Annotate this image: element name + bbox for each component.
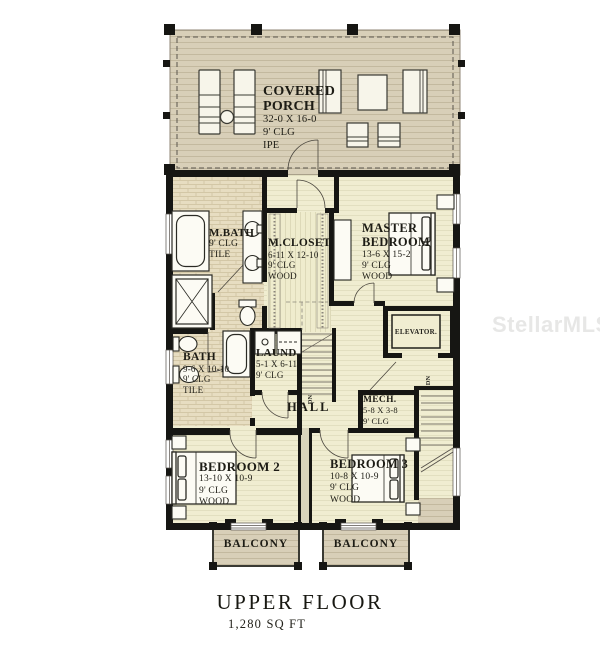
room-ceiling: 9' CLG xyxy=(363,416,415,426)
stellar-mls-watermark: StellarMLS xyxy=(492,312,600,338)
room-ceiling: 9' CLG xyxy=(256,370,300,381)
room-label-mbath: M.BATH 9' CLG TILE xyxy=(209,227,261,262)
master-bathtub xyxy=(172,211,209,271)
room-label-master-bedroom: MASTER BEDROOM 13-6 X 15-2 9' CLG WOOD xyxy=(362,222,454,284)
room-floor: TILE xyxy=(183,385,245,396)
room-label-balcony-left: BALCONY xyxy=(213,538,299,550)
plan-area: 1,280 SQ FT xyxy=(228,617,306,632)
stairs-down-marker: DN xyxy=(425,376,432,385)
room-label-mech: MECH. 5-8 X 3-8 9' CLG xyxy=(363,395,415,426)
room-label-laundry: LAUND 5-1 X 6-11 9' CLG xyxy=(256,347,300,381)
wardrobe xyxy=(334,220,351,280)
room-label-bedroom3: BEDROOM 3 10-8 X 10-9 9' CLG WOOD xyxy=(330,458,410,506)
room-floor: WOOD xyxy=(330,495,410,506)
room-label-covered-porch: COVERED PORCH 32-0 X 16-0 9' CLG IPE xyxy=(263,85,351,152)
side-table xyxy=(221,111,234,124)
room-dims: 6-11 X 12-10 xyxy=(268,250,330,261)
room-ceiling: 9' CLG xyxy=(263,127,351,140)
room-name: M.CLOSET xyxy=(268,237,330,250)
lounge-chair xyxy=(234,70,255,134)
room-ceiling: 9' CLG xyxy=(330,483,410,494)
room-dims: 13-10 X 10-9 xyxy=(199,474,289,485)
room-ceiling: 9' CLG xyxy=(209,239,261,250)
room-name: MECH. xyxy=(363,395,415,405)
room-name: BATH xyxy=(183,351,245,364)
room-name: MASTER BEDROOM xyxy=(362,222,454,250)
room-floor: WOOD xyxy=(199,497,289,508)
room-dims: 5-8 X 3-8 xyxy=(363,405,415,415)
room-dims: 32-0 X 16-0 xyxy=(263,114,351,127)
room-ceiling: 9' CLG xyxy=(268,260,330,271)
room-floor: IPE xyxy=(263,140,351,153)
ottoman xyxy=(378,123,400,147)
room-dims: 9-6 X 10-10 xyxy=(183,364,245,375)
shower xyxy=(172,275,212,328)
floor-plan-canvas: COVERED PORCH 32-0 X 16-0 9' CLG IPE M.B… xyxy=(0,0,600,664)
armchair xyxy=(403,70,427,113)
room-ceiling: 9' CLG xyxy=(183,374,245,385)
room-name: BEDROOM 2 xyxy=(199,460,289,474)
coffee-table xyxy=(358,75,387,110)
room-label-elevator: ELEVATOR. xyxy=(393,328,439,336)
room-label-balcony-right: BALCONY xyxy=(323,538,409,550)
room-name: M.BATH xyxy=(209,227,261,239)
room-floor: TILE xyxy=(209,250,261,261)
room-dims: 13-6 X 15-2 xyxy=(362,250,454,261)
plan-title: UPPER FLOOR xyxy=(150,590,450,615)
room-dims: 5-1 X 6-11 xyxy=(256,359,300,370)
room-name: COVERED PORCH xyxy=(263,85,351,114)
room-ceiling: 9' CLG xyxy=(199,486,289,497)
room-label-bedroom2: BEDROOM 2 13-10 X 10-9 9' CLG WOOD xyxy=(199,460,289,508)
room-floor: WOOD xyxy=(362,272,454,283)
room-ceiling: 9' CLG xyxy=(362,261,454,272)
room-name: LAUND xyxy=(256,347,300,359)
room-dims: 10-8 X 10-9 xyxy=(330,472,410,483)
room-label-bath: BATH 9-6 X 10-10 9' CLG TILE xyxy=(183,351,245,396)
room-floor: WOOD xyxy=(268,271,330,282)
lounge-chair xyxy=(199,70,220,134)
stairs-down-marker: DN xyxy=(307,395,314,404)
room-label-mcloset: M.CLOSET 6-11 X 12-10 9' CLG WOOD xyxy=(268,237,330,282)
bath-sink xyxy=(173,337,197,352)
room-name: BEDROOM 3 xyxy=(330,458,410,472)
toilet xyxy=(239,300,256,326)
